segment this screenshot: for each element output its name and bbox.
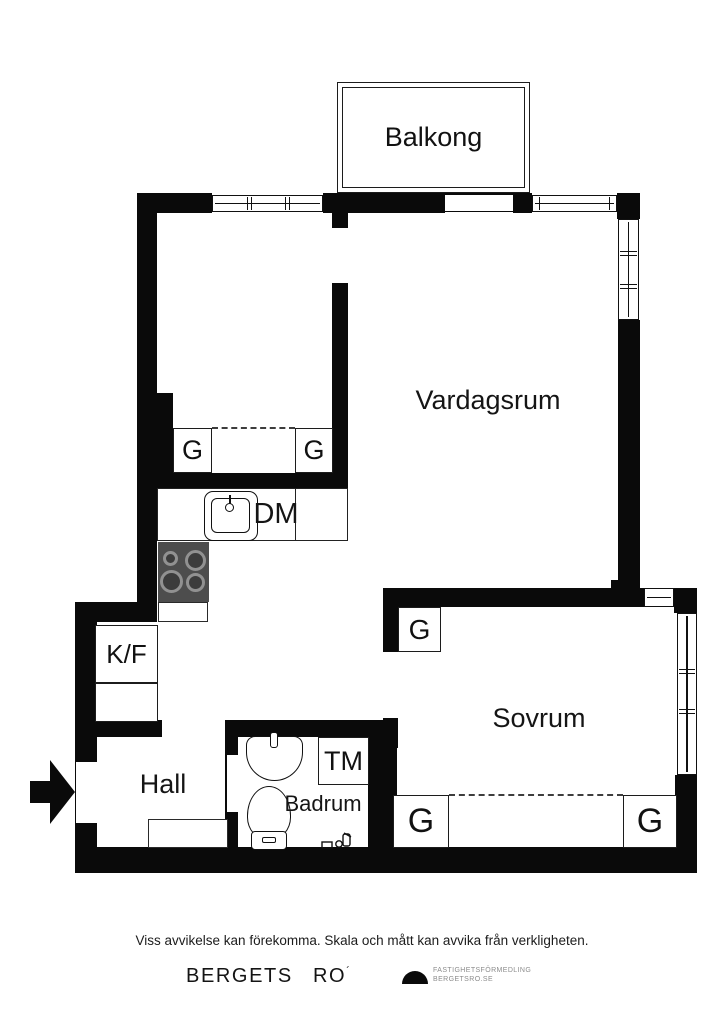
balcony-door-threshold (445, 193, 513, 195)
window (212, 195, 323, 212)
bathroom-door-line (225, 755, 227, 812)
wall (137, 193, 157, 602)
wall (383, 588, 644, 607)
logo-line-2: BERGETSRO.SE (433, 976, 531, 985)
floor-drain-icon (320, 832, 354, 852)
wall (323, 193, 445, 213)
washing-machine-box: TM (318, 737, 369, 785)
wall (92, 720, 162, 737)
fridge-freezer-box: K/F (95, 625, 158, 683)
wall (618, 320, 640, 590)
toilet-button-icon (262, 837, 276, 843)
closet-box: G (398, 607, 441, 652)
fridge-freezer-label: K/F (106, 639, 146, 670)
closet-box: G (393, 795, 449, 848)
brand-accent-mark: ´ (346, 965, 351, 977)
stove (158, 542, 209, 602)
wall (75, 847, 697, 873)
balcony-railing-inner: Balkong (342, 87, 525, 188)
closet-box: G (623, 795, 677, 848)
wall (513, 193, 532, 213)
closet-box: G (173, 428, 212, 473)
brand-word-bergets: BERGETS (186, 965, 293, 988)
wall (137, 473, 348, 488)
burner-icon (163, 551, 178, 566)
disclaimer-text: Viss avvikelse kan förekomma. Skala och … (0, 933, 724, 948)
kitchen-sink (204, 491, 258, 541)
room-label-balcony: Balkong (385, 122, 483, 153)
closet-label: G (408, 802, 434, 841)
brand-word-ro: RO´ (313, 965, 351, 988)
brand-word-ro-text: RO (313, 965, 346, 987)
wall (75, 602, 97, 762)
burner-icon (160, 570, 183, 593)
hall-cabinet (148, 819, 228, 848)
closet-dashed-line (449, 794, 623, 796)
closet-label: G (409, 614, 431, 646)
closet-box: G (295, 428, 333, 473)
window (618, 219, 639, 320)
wall (617, 193, 640, 219)
closet-label: G (303, 435, 324, 466)
dome-logo-icon (402, 971, 428, 984)
wall (332, 283, 348, 488)
balcony-door-threshold (445, 211, 513, 212)
faucet-icon (225, 503, 234, 512)
washing-machine-label: TM (324, 746, 363, 777)
entry-arrow-icon (28, 758, 76, 826)
closet-label: G (182, 435, 203, 466)
room-label-bathroom: Badrum (287, 793, 359, 815)
wall (675, 775, 697, 870)
room-label-bedroom: Sovrum (479, 703, 599, 733)
wall (225, 720, 397, 737)
balcony-railing: Balkong (337, 82, 530, 193)
cabinet-box (95, 683, 158, 722)
wall (674, 588, 697, 613)
window (677, 613, 697, 775)
wall (383, 588, 398, 652)
burner-icon (186, 573, 205, 592)
logo-line-1: FASTIGHETSFÖRMEDLING (433, 967, 531, 976)
wall (332, 213, 348, 228)
counter-segment (158, 602, 208, 622)
toilet-tank-icon (251, 831, 287, 850)
dishwasher-label: DM (255, 488, 297, 541)
room-label-living-room: Vardagsrum (408, 385, 568, 415)
burner-icon (185, 550, 206, 571)
logo-text-block: FASTIGHETSFÖRMEDLING BERGETSRO.SE (433, 967, 531, 984)
room-label-hall: Hall (133, 769, 193, 799)
floor-plan: Balkong (0, 0, 724, 1024)
bathroom-faucet-icon (270, 732, 278, 748)
closet-label: G (637, 802, 663, 841)
window (644, 588, 674, 607)
closet-dashed-line (212, 427, 295, 429)
window (532, 195, 617, 212)
wall (225, 737, 238, 755)
